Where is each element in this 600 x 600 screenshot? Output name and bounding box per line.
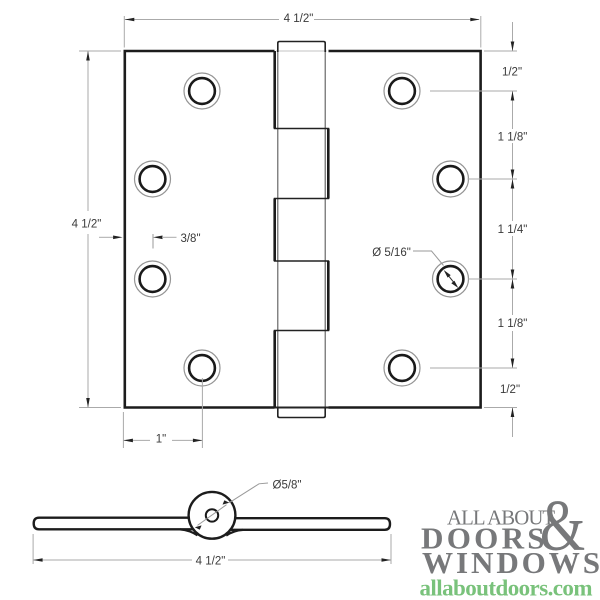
- svg-text:4 1/2": 4 1/2": [284, 13, 314, 25]
- svg-text:Ø5/8": Ø5/8": [273, 480, 302, 492]
- svg-text:1": 1": [156, 434, 166, 446]
- svg-text:1 1/8": 1 1/8": [498, 132, 528, 144]
- svg-text:allaboutdoors.com: allaboutdoors.com: [420, 576, 593, 600]
- svg-text:1 1/4": 1 1/4": [498, 224, 528, 236]
- svg-text:1/2": 1/2": [500, 384, 520, 396]
- svg-text:1/2": 1/2": [502, 67, 522, 79]
- svg-text:3/8": 3/8": [180, 233, 200, 245]
- svg-text:Ø 5/16": Ø 5/16": [372, 247, 411, 259]
- svg-text:1 1/8": 1 1/8": [498, 318, 528, 330]
- svg-text:4 1/2": 4 1/2": [196, 556, 226, 568]
- svg-text:4 1/2": 4 1/2": [72, 219, 102, 231]
- svg-text:WINDOWS: WINDOWS: [422, 545, 600, 580]
